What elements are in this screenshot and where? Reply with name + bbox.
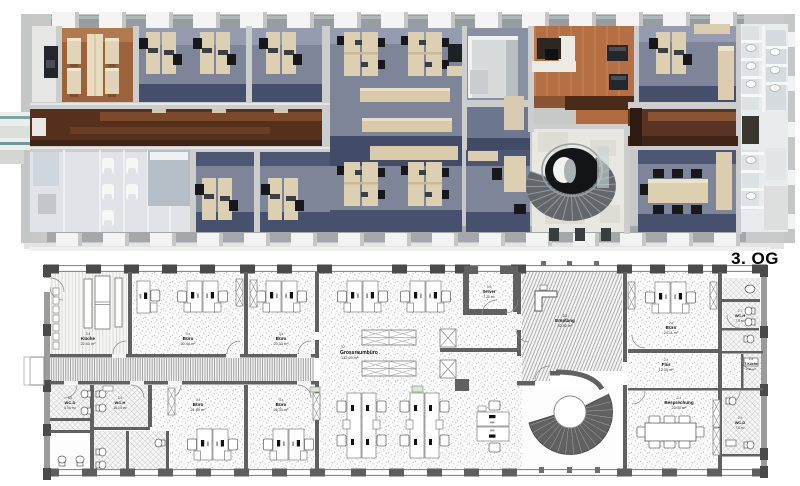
svg-text:2.7: 2.7: [738, 309, 743, 313]
svg-text:WC-H: WC-H: [115, 400, 126, 405]
svg-text:Büro: Büro: [193, 402, 204, 407]
svg-text:Server: Server: [482, 289, 495, 294]
svg-text:24.11 m²: 24.11 m²: [664, 331, 679, 335]
svg-text:WC-D: WC-D: [735, 421, 746, 425]
svg-text:21.69 m²: 21.69 m²: [191, 408, 207, 412]
svg-text:2.11 m²: 2.11 m²: [746, 367, 756, 371]
svg-text:X2: X2: [341, 345, 345, 349]
svg-text:5.00 m²: 5.00 m²: [64, 406, 76, 410]
svg-text:WC-D: WC-D: [65, 400, 76, 405]
svg-text:132.09 m²: 132.09 m²: [341, 356, 359, 360]
svg-text:7.5 m²: 7.5 m²: [735, 319, 744, 323]
svg-text:26.31 m²: 26.31 m²: [274, 408, 290, 412]
svg-text:Büro: Büro: [666, 325, 677, 330]
svg-text:12.30 m²: 12.30 m²: [659, 368, 675, 372]
svg-text:Büro: Büro: [183, 336, 194, 341]
svg-text:32.92 m²: 32.92 m²: [558, 324, 574, 328]
svg-text:7.20 m²: 7.20 m²: [483, 295, 495, 299]
svg-text:20.03 m²: 20.03 m²: [274, 342, 290, 346]
svg-text:Empfang: Empfang: [555, 318, 575, 323]
svg-text:T-Küche: T-Küche: [744, 362, 757, 366]
svg-text:2.9: 2.9: [738, 416, 743, 420]
svg-text:22.41 m²: 22.41 m²: [81, 342, 97, 346]
svg-text:Büro: Büro: [276, 336, 287, 341]
svg-text:16.14 m²: 16.14 m²: [113, 406, 127, 410]
svg-text:Flur: Flur: [662, 362, 671, 367]
svg-text:2.8: 2.8: [749, 357, 754, 361]
svg-text:Büro: Büro: [276, 402, 287, 407]
svg-text:30.44 m²: 30.44 m²: [181, 342, 197, 346]
svg-text:Besprechung: Besprechung: [664, 400, 694, 405]
svg-text:Küche: Küche: [81, 336, 95, 341]
svg-text:WC-H: WC-H: [735, 314, 746, 318]
svg-text:7.0 m²: 7.0 m²: [735, 426, 744, 430]
svg-text:23.30 m²: 23.30 m²: [672, 406, 688, 410]
